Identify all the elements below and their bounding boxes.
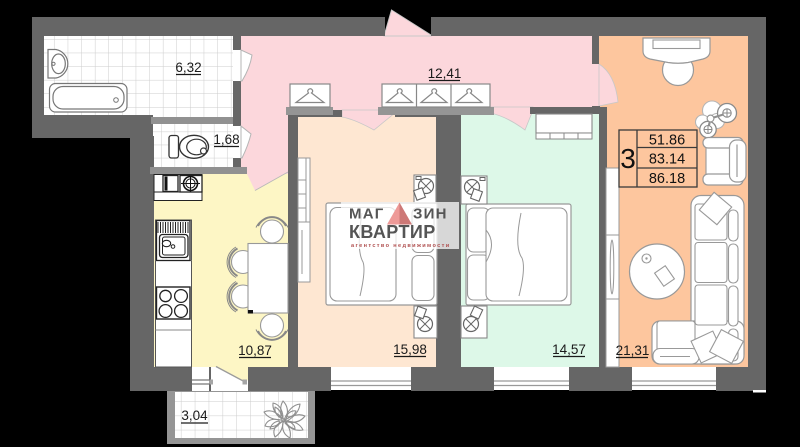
svg-text:МАГ: МАГ bbox=[349, 206, 384, 223]
svg-text:ЗИН: ЗИН bbox=[413, 206, 448, 223]
svg-text:51.86: 51.86 bbox=[649, 133, 685, 149]
svg-text:86.18: 86.18 bbox=[649, 171, 685, 187]
svg-text:10,87: 10,87 bbox=[238, 343, 272, 358]
svg-text:агентство недвижимости: агентство недвижимости bbox=[351, 243, 451, 249]
svg-text:12,41: 12,41 bbox=[428, 66, 462, 81]
svg-text:14,57: 14,57 bbox=[552, 342, 586, 357]
svg-text:КВАРТИР: КВАРТИР bbox=[349, 222, 436, 242]
svg-text:21,31: 21,31 bbox=[616, 343, 650, 358]
svg-text:15,98: 15,98 bbox=[393, 342, 427, 357]
svg-text:3: 3 bbox=[620, 143, 636, 174]
svg-text:3,04: 3,04 bbox=[181, 408, 208, 423]
svg-text:83.14: 83.14 bbox=[649, 152, 685, 168]
svg-text:6,32: 6,32 bbox=[175, 60, 201, 75]
svg-text:1,68: 1,68 bbox=[213, 132, 239, 147]
